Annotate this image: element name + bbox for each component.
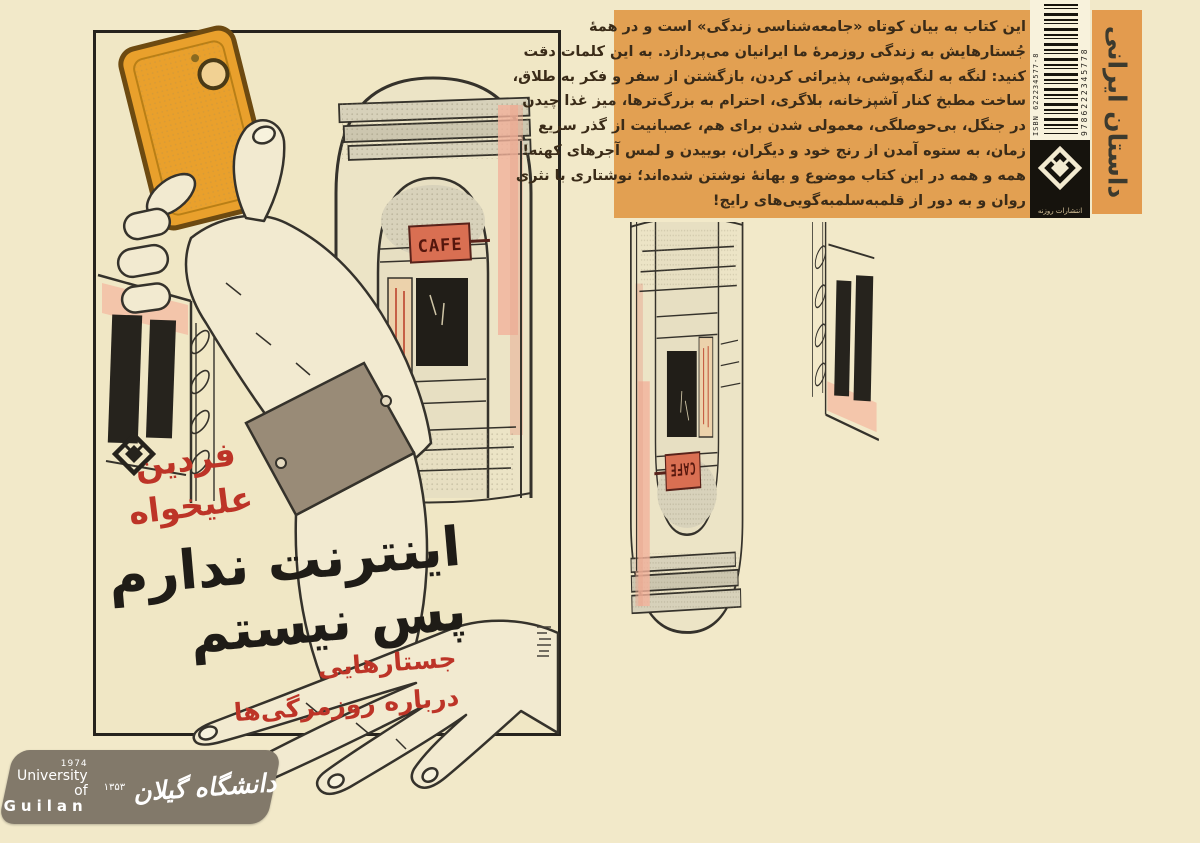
artist-seal-icon [533,623,555,659]
blurb-line: ساخت مطبخ کنار آشپزخانه، بلاگری، احترام … [626,89,1026,114]
book-cover-spread: CAFE [0,0,1200,843]
category-label: داستان ایرانی [1103,26,1132,198]
university-name-english: 1974 University of Guilan [4,760,88,815]
blurb-line: جُستارهایش به زندگی روزمرهٔ ما ایرانیان … [626,40,1026,65]
blurb-line: همه و همه در این کتاب موضوع و بهانهٔ نوش… [626,164,1026,189]
founding-year-fa: ۱۳۵۳ [104,782,125,793]
back-cover-illustration [628,222,880,652]
front-cover: CAFE [93,30,561,736]
publisher-name: انتشارات روزنه [1030,207,1090,215]
publisher-logo-back: انتشارات روزنه [1030,140,1090,218]
barcode-icon [1044,4,1078,134]
barcode-area: ISBN 622234577-8 9786222345778 [1030,0,1090,140]
subtitle-line-1: جستارهایی [317,644,458,683]
author-first-name: فردین [133,434,238,485]
guilan-label: Guilan [4,799,88,815]
blurb-line: در جنگل، بی‌حوصلگی، معمولی شدن برای هم، … [626,114,1026,139]
university-of-label: University of [4,769,88,798]
category-strip: داستان ایرانی [1092,10,1142,214]
isbn-label: ISBN 622234577-8 [1032,4,1040,136]
blurb-line: زمان، به ستوه آمدن از رنج خود و دیگران، … [626,139,1026,164]
blurb-line: روان و به دور از قلمبه‌سلمبه‌گویی‌های را… [626,189,1026,214]
university-of-guilan-banner: 1974 University of Guilan ۱۳۵۳ دانشگاه گ… [0,750,282,824]
university-name-persian: دانشگاه گیلان [132,768,277,807]
back-cover-blurb: این کتاب به بیان کوتاه «جامعه‌شناسی زندگ… [614,10,1038,218]
blurb-line: کنید: لنگه به لنگه‌پوشی، پذیرائی کردن، ب… [626,65,1026,90]
blurb-line: این کتاب به بیان کوتاه «جامعه‌شناسی زندگ… [626,15,1026,40]
barcode-number: 9786222345778 [1080,4,1089,136]
